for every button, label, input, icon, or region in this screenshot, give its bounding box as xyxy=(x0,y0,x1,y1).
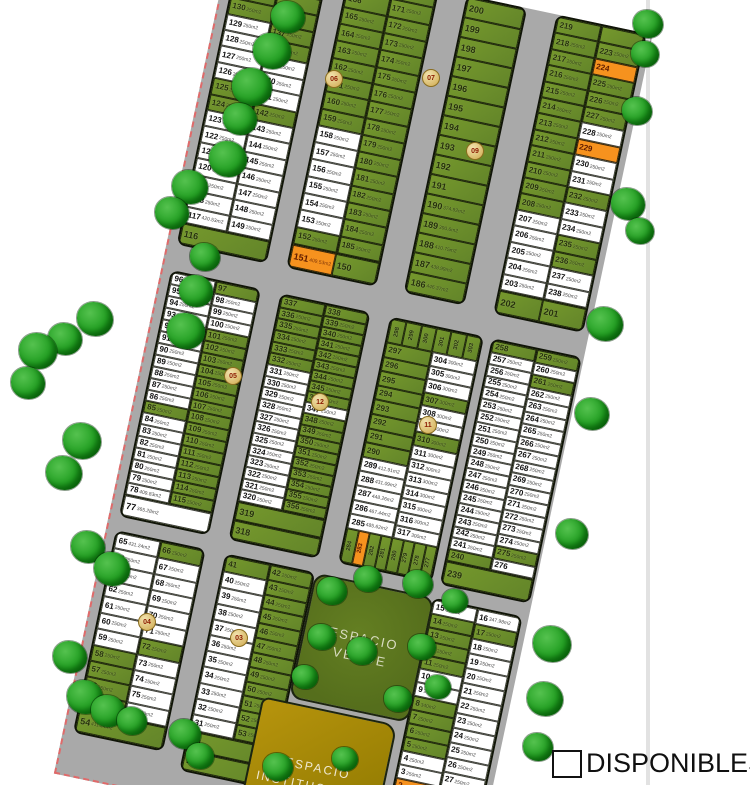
legend-available-label: DISPONIBLES xyxy=(586,748,750,779)
tree-icon xyxy=(19,333,57,369)
tree-icon xyxy=(209,141,247,177)
tree-icon xyxy=(223,103,257,135)
tree-icon xyxy=(622,97,652,125)
tree-icon xyxy=(77,302,113,336)
tree-icon xyxy=(442,589,468,613)
tree-icon xyxy=(631,41,659,67)
tree-icon xyxy=(46,456,82,490)
tree-icon xyxy=(190,243,220,271)
subdivision-plan: 133132131130250m2129250m2128250m2127250m… xyxy=(0,0,750,785)
tree-icon xyxy=(167,313,205,349)
tree-icon xyxy=(575,398,609,430)
tree-icon xyxy=(11,367,45,399)
tree-icon xyxy=(117,707,147,735)
tree-icon xyxy=(179,275,213,307)
tree-icon xyxy=(271,1,305,33)
tree-icon xyxy=(626,218,654,244)
tree-icon xyxy=(155,197,189,229)
tree-icon xyxy=(425,675,451,699)
block-marker-12: 12 xyxy=(311,393,329,411)
block-marker-05: 05 xyxy=(224,367,242,385)
tree-icon xyxy=(527,682,563,716)
tree-icon xyxy=(408,634,436,660)
tree-icon xyxy=(232,68,272,106)
legend: DISPONIBLES xyxy=(552,748,750,779)
tree-icon xyxy=(263,753,293,781)
tree-icon xyxy=(308,624,336,650)
lot-303: 303 xyxy=(462,335,482,362)
tree-icon xyxy=(94,552,130,586)
block-marker-04: 04 xyxy=(138,613,156,631)
tree-icon xyxy=(611,188,645,220)
tree-icon xyxy=(347,637,377,665)
block-marker-07: 07 xyxy=(422,69,440,87)
tree-icon xyxy=(53,641,87,673)
tree-icon xyxy=(317,577,347,605)
tree-icon xyxy=(533,626,571,662)
tree-icon xyxy=(186,743,214,769)
block-b4: 219218250m2217250m2216250m2215250m221425… xyxy=(493,14,647,332)
tree-icon xyxy=(523,733,553,761)
tree-icon xyxy=(63,423,101,459)
plan-map: 133132131130250m2129250m2128250m2127250m… xyxy=(54,0,653,785)
block-marker-11: 11 xyxy=(419,416,437,434)
tree-icon xyxy=(556,519,588,549)
tree-icon xyxy=(332,747,358,771)
tree-icon xyxy=(384,686,412,712)
tree-icon xyxy=(253,33,291,69)
block-marker-03: 03 xyxy=(230,629,248,647)
legend-available-swatch xyxy=(552,750,582,778)
tree-icon xyxy=(587,307,623,341)
tree-icon xyxy=(354,566,382,592)
tree-icon xyxy=(633,10,663,38)
tree-icon xyxy=(292,665,318,689)
block-marker-06: 06 xyxy=(325,70,343,88)
tree-icon xyxy=(403,570,433,598)
block-marker-09: 09 xyxy=(466,142,484,160)
